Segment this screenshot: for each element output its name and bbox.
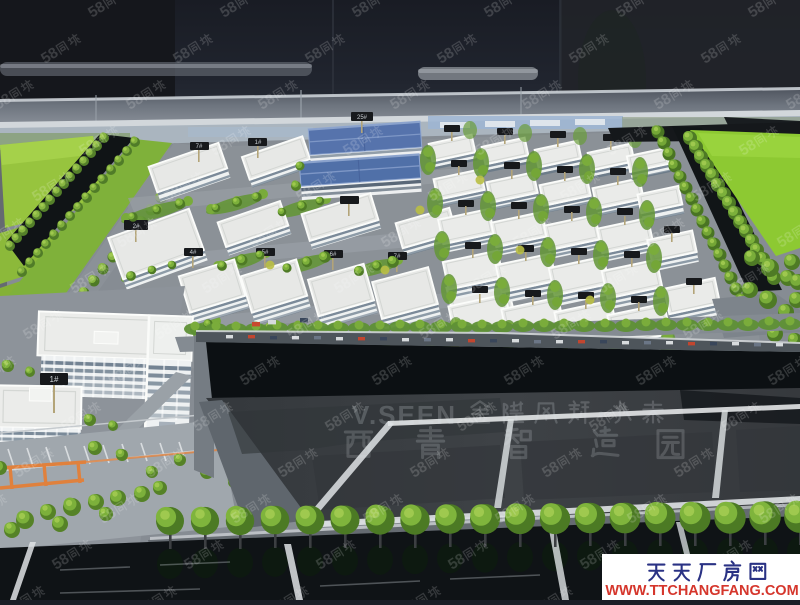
- svg-text:25#: 25#: [357, 115, 368, 121]
- svg-text:4#: 4#: [190, 250, 197, 256]
- svg-text:6#: 6#: [330, 252, 337, 258]
- svg-text:V.SEEN: V.SEEN: [352, 400, 457, 430]
- svg-text:1#: 1#: [50, 375, 59, 384]
- svg-text:7#: 7#: [196, 144, 203, 150]
- svg-text:1#: 1#: [255, 140, 262, 146]
- svg-text:WWW.TTCHANGFANG.COM: WWW.TTCHANGFANG.COM: [605, 583, 798, 599]
